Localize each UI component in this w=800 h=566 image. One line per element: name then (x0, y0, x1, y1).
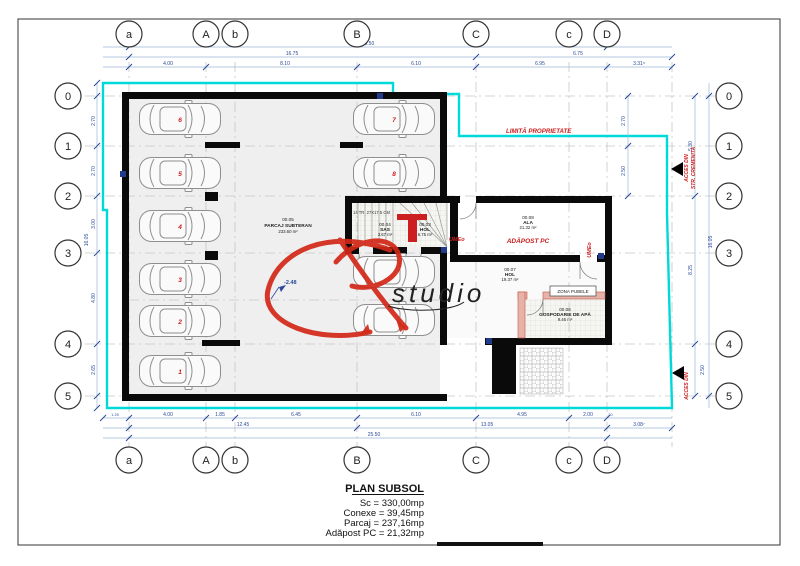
room-area: 3.67 m² (378, 232, 393, 237)
grid-col-label: C (472, 455, 480, 467)
room-fills (129, 99, 605, 394)
ume-label: UMEo (449, 237, 465, 243)
shelter-label: ADĂPOST PC (506, 236, 550, 245)
dim-label: 3.08⁷ (633, 422, 645, 428)
sheet-fold-mark (437, 542, 543, 546)
dim-label: 1.25 (111, 413, 118, 417)
grid-row-label: 4 (65, 339, 71, 351)
grid-col-label: D (603, 455, 611, 467)
grid-col-label: B (353, 29, 360, 41)
grid-row-label: 5 (65, 391, 71, 403)
room-number: 00.05 (282, 217, 294, 222)
ume-label: UMEo (587, 242, 593, 258)
access-arrow-icon (672, 366, 684, 380)
grid-row-label: 2 (65, 191, 71, 203)
dim-label: 4.80 (91, 293, 97, 303)
grid-row-label: 3 (65, 248, 71, 260)
dim-label: 4.95 (517, 412, 527, 418)
access-street-label: ACCES DIN (684, 154, 690, 183)
plan-title: PLAN SUBSOL (345, 483, 424, 495)
grid-col-label: a (126, 29, 133, 41)
grid-row-label: 0 (65, 91, 71, 103)
dim-label: 4.00 (163, 61, 173, 67)
dim-label: 3.00 (91, 219, 97, 229)
parking-spot-number: 2 (177, 319, 182, 326)
dim-label: 2.65 (91, 365, 97, 375)
grid-col-label: b (232, 455, 238, 467)
dim-label: 2.70 (621, 116, 627, 126)
room-area: 21.32 m² (520, 225, 538, 230)
dim-label: 6.45 (291, 412, 301, 418)
parking-spot-number: 5 (178, 171, 182, 178)
grid-col-label: C (472, 29, 480, 41)
room-number: 00.07 (504, 267, 516, 272)
room-number: 00.03 (419, 222, 431, 227)
dim-label: 6.10 (411, 61, 421, 67)
grid-col-label: c (566, 29, 572, 41)
dim-label: 16.75 (286, 51, 299, 57)
title-block: PLAN SUBSOL Sc = 330,00mp Conexe = 39,45… (326, 483, 425, 539)
drawing-sheet: 25.50 16.75 6.75 4.00 8.10 6.10 6.95 3.3… (0, 0, 800, 566)
grid-row-label: 1 (726, 141, 732, 153)
dim-label: 6.10 (411, 412, 421, 418)
bins-zone-label: ZONA PUBELE (557, 289, 588, 294)
dim-label: .20 (607, 413, 612, 417)
grid-col-label: D (603, 29, 611, 41)
room-area: 6.75 m² (418, 232, 433, 237)
level-label: -2.48 (284, 280, 297, 286)
dim-label: 2.00 (583, 412, 593, 418)
dim-label: 12.45 (237, 422, 250, 428)
grid-row-label: 4 (726, 339, 732, 351)
grid-col-label: A (202, 455, 210, 467)
dim-label: 1.85 (215, 412, 225, 418)
dim-label: 2.50 (700, 365, 706, 375)
grid-col-label: c (566, 455, 572, 467)
dim-label: 8.10 (280, 61, 290, 67)
dim-label: 6.75 (573, 51, 583, 57)
title-line: Adăpost PC = 21,32mp (326, 528, 425, 539)
watermark-text: studio (392, 278, 485, 308)
grid-row-label: 3 (726, 248, 732, 260)
dim-label: 16.05 (708, 236, 714, 249)
parking-spot-number: 4 (177, 224, 182, 231)
grid-row-label: 0 (726, 91, 732, 103)
access-arrow-icon (671, 162, 683, 176)
dim-label: 3.31⁵ (633, 61, 645, 67)
grid-col-label: A (202, 29, 210, 41)
room-area: 9.46 m² (558, 317, 573, 322)
room-number: 00.06 (559, 307, 571, 312)
dim-label: 13.05 (481, 422, 494, 428)
parking-spot-number: 3 (178, 277, 182, 284)
dim-label: 2.70 (91, 166, 97, 176)
room-number: 00.08 (522, 215, 534, 220)
room-area: 19.37 m² (502, 277, 520, 282)
floor-plan-svg: 25.50 16.75 6.75 4.00 8.10 6.10 6.95 3.3… (0, 0, 800, 566)
parking-spot-number: 1 (178, 369, 182, 376)
dim-label: 16.05 (84, 234, 90, 247)
parking-spot-number: 6 (178, 117, 182, 124)
room-number: 00.04 (379, 222, 391, 227)
dim-label: 25.50 (368, 432, 381, 438)
property-limit-label: LIMITĂ PROPRIETATE (506, 128, 572, 135)
dim-label: 4.00 (163, 412, 173, 418)
grid-row-label: 1 (65, 141, 71, 153)
grid-col-label: b (232, 29, 238, 41)
grid-col-label: B (353, 455, 360, 467)
grid-row-label: 2 (726, 191, 732, 203)
dim-label: 8.25 (688, 265, 694, 275)
dim-label: 2.70 (91, 116, 97, 126)
dim-label: 2.50 (621, 166, 627, 176)
parking-spot-number: 8 (392, 171, 396, 178)
dim-label: 6.95 (535, 61, 545, 67)
room-area: 233.60 m² (278, 229, 298, 234)
parking-spot-number: 7 (392, 117, 396, 124)
grid-col-label: a (126, 455, 133, 467)
access-label: ACCES DIN (684, 372, 690, 401)
grid-row-label: 5 (726, 391, 732, 403)
stairs-note: 14 TR. 27X17.5 CM (353, 210, 390, 215)
access-street-label: STR. CREMENITA (691, 147, 697, 190)
